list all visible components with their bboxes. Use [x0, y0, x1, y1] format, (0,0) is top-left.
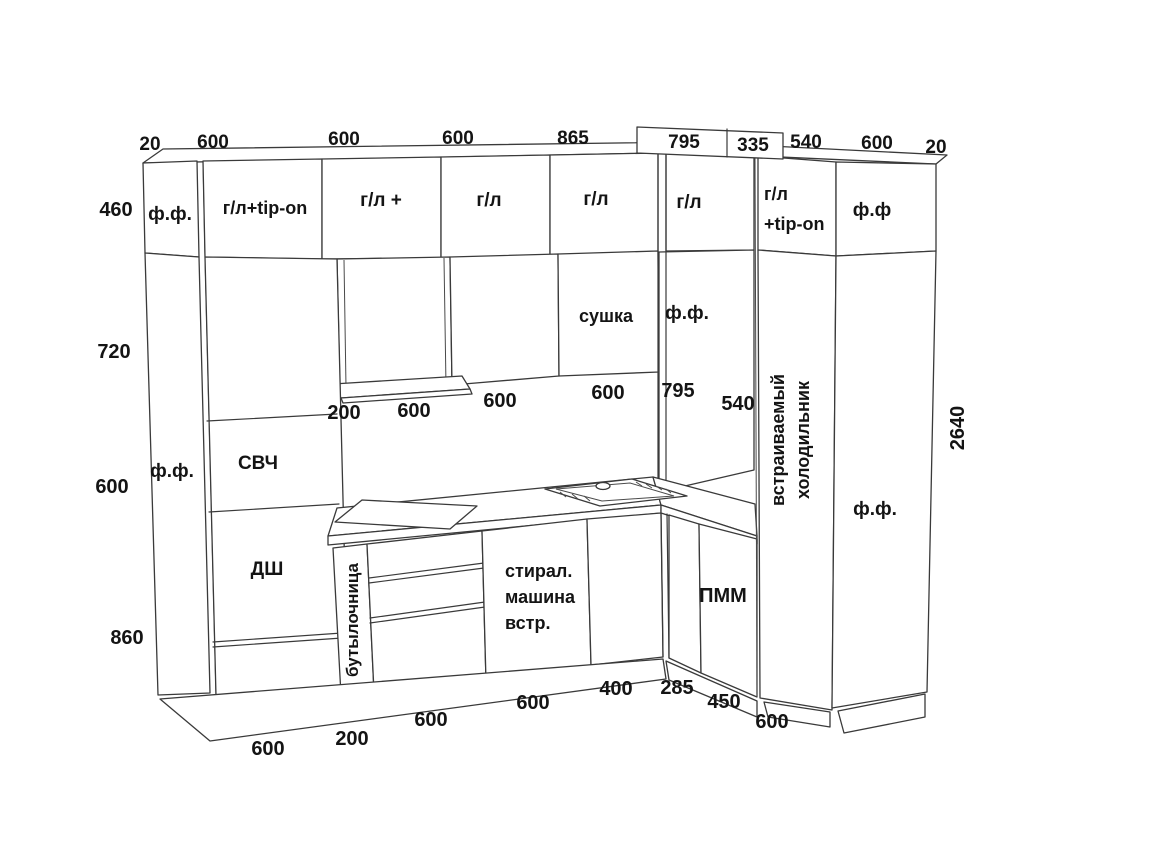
dim-top: 20: [139, 134, 160, 155]
label-left-panel-top: ф.ф.: [148, 204, 192, 225]
right-side-panel: [832, 251, 936, 708]
dim-top-box: 795: [668, 132, 700, 153]
dishwasher-door: [699, 524, 757, 697]
label-fridge-2: холодильник: [793, 380, 813, 499]
label-washer-1: стирал.: [505, 561, 572, 581]
dim-top: 600: [197, 132, 229, 153]
dim-left: 600: [95, 476, 128, 498]
dim-bottom: 600: [755, 711, 788, 733]
label-left-side-panel: ф.ф.: [150, 461, 194, 482]
label-bottle-rack: бутылочница: [343, 562, 362, 677]
label-washer-2: машина: [505, 587, 576, 607]
dim-mid: 600: [591, 382, 624, 404]
label-upper-door-3: г/л: [476, 190, 501, 211]
dim-left: 860: [110, 627, 143, 649]
dim-top: 600: [328, 129, 360, 150]
dim-top: 540: [790, 132, 822, 153]
dim-bottom: 450: [707, 691, 740, 713]
dim-mid: 200: [327, 402, 360, 424]
dim-bottom: 285: [660, 677, 693, 699]
label-upper-door-1: г/л+tip-on: [223, 198, 307, 218]
dim-bottom: 600: [251, 738, 284, 760]
label-fridge-top-door-2: +tip-on: [764, 214, 825, 234]
corner-filler-door: [669, 515, 701, 673]
dim-mid: 540: [721, 393, 754, 415]
label-washer-3: встр.: [505, 613, 550, 633]
dim-bottom: 600: [414, 709, 447, 731]
faucet: [596, 483, 610, 490]
dim-top: 20: [925, 137, 946, 158]
label-dryer-cabinet: сушка: [579, 306, 634, 326]
dim-bottom: 200: [335, 728, 368, 750]
label-microwave: СВЧ: [238, 453, 278, 474]
dim-top-box: 335: [737, 135, 769, 156]
dim-mid: 600: [483, 390, 516, 412]
label-right-side-panel: ф.ф.: [853, 499, 897, 520]
kitchen-elevation-drawing: 20 600 600 600 865 795 335 540 600 20 46…: [0, 0, 1152, 864]
dim-top: 600: [861, 133, 893, 154]
label-upper-door-2: г/л +: [360, 190, 402, 211]
fridge-top-door: [758, 156, 836, 256]
dim-mid: 600: [397, 400, 430, 422]
corner-base-door: [587, 513, 663, 665]
dim-left: 460: [99, 199, 132, 221]
label-upper-door-corner: г/л: [676, 192, 701, 213]
tall-unit-front: [205, 257, 348, 699]
corner-upper-cabinet: [659, 250, 754, 492]
open-upper-cabinet: [337, 257, 452, 392]
label-fridge-top-door-1: г/л: [764, 184, 788, 204]
drawer-unit: [367, 531, 486, 692]
dim-left: 720: [97, 341, 130, 363]
dim-bottom: 600: [516, 692, 549, 714]
label-right-panel-top: ф.ф: [853, 200, 892, 221]
left-dimensions: 460 720 600 860: [95, 199, 143, 649]
dim-mid: 795: [661, 380, 694, 402]
label-oven: ДШ: [251, 559, 284, 580]
label-dishwasher: ПММ: [699, 585, 747, 607]
label-upper-door-4: г/л: [583, 189, 608, 210]
dim-total-height: 2640: [947, 406, 969, 451]
dim-top: 865: [557, 128, 589, 149]
drawing-canvas: 20 600 600 600 865 795 335 540 600 20 46…: [0, 0, 1152, 864]
label-fridge-1: встраиваемый: [768, 374, 788, 506]
dim-bottom: 400: [599, 678, 632, 700]
dim-top: 600: [442, 128, 474, 149]
label-corner-upper: ф.ф.: [665, 303, 709, 324]
upper-door-5: [450, 254, 559, 385]
